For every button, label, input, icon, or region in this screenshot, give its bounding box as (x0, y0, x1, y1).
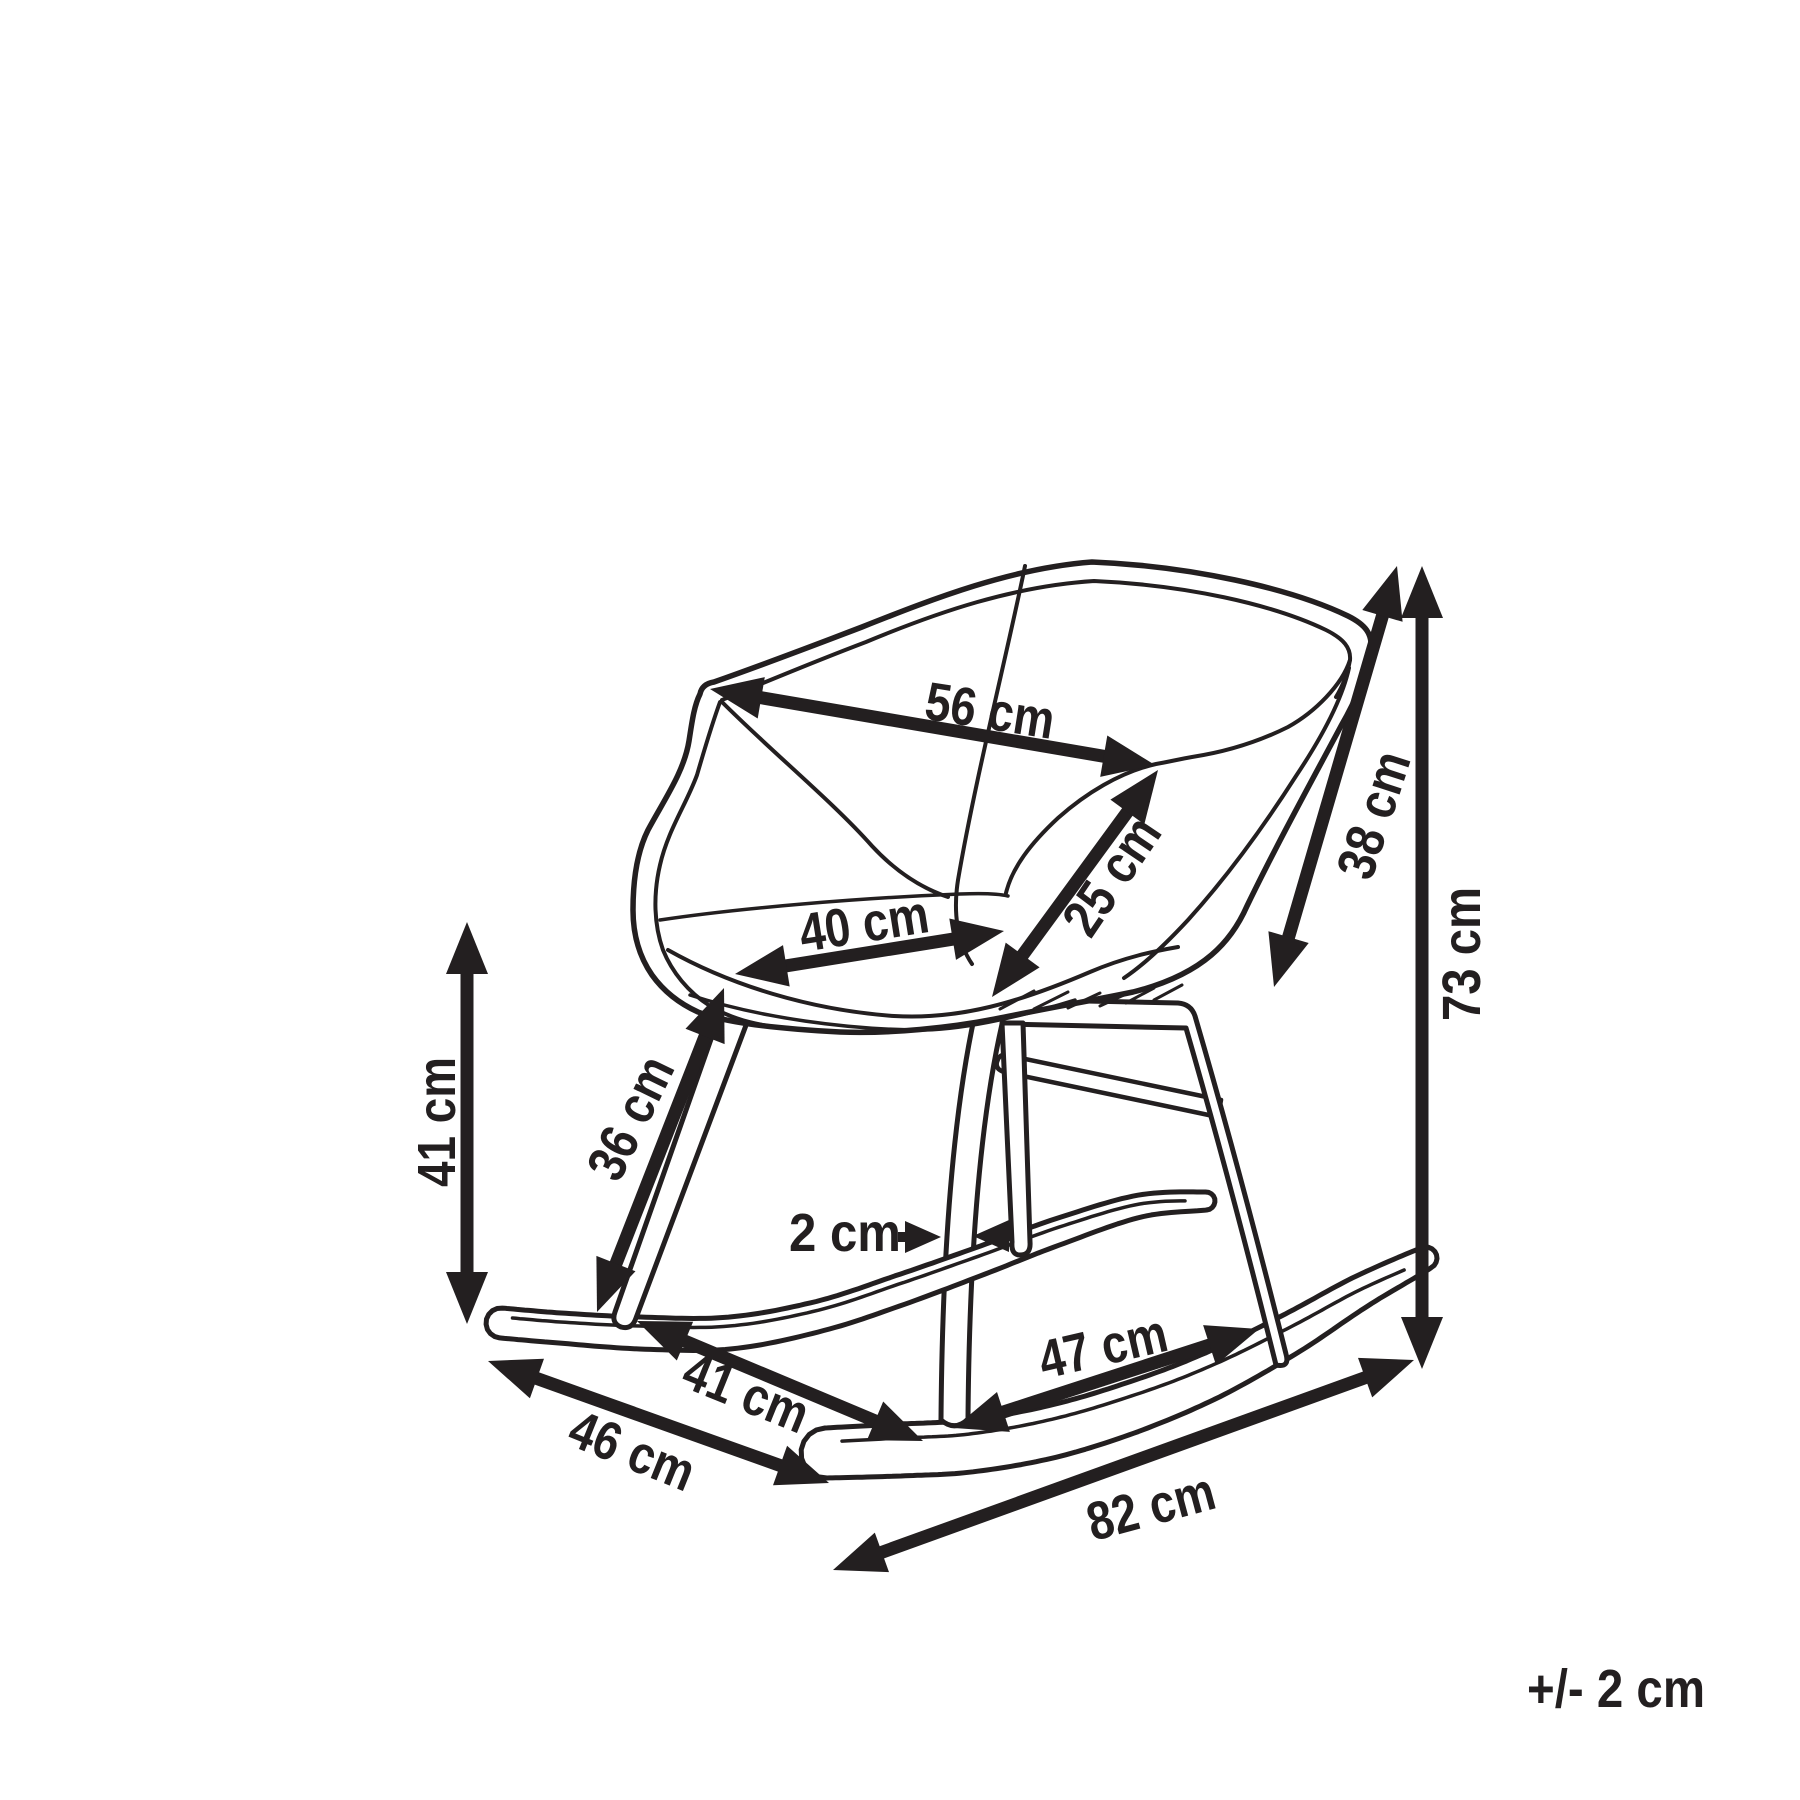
svg-text:73 cm: 73 cm (1432, 887, 1492, 1021)
svg-text:2 cm: 2 cm (789, 1203, 901, 1263)
svg-text:41 cm: 41 cm (407, 1057, 467, 1187)
svg-text:+/- 2 cm: +/- 2 cm (1527, 1659, 1705, 1719)
